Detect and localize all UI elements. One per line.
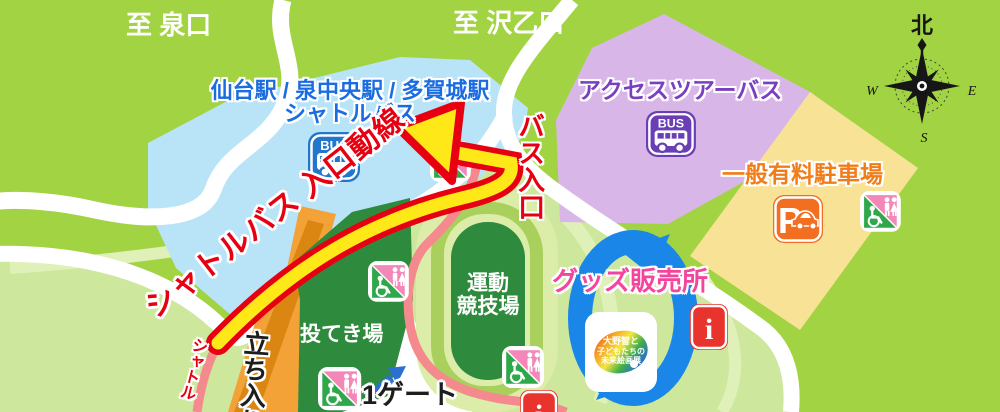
label-to-sawaoto-exit: 至 沢乙口	[453, 9, 564, 37]
event-logo: 大野智と 子どもたちの 未来絵画展	[585, 312, 657, 392]
label-stadium-line1: 運動	[448, 273, 528, 296]
compass-west-label: W	[866, 84, 879, 99]
label-stadium-line2: 競技場	[448, 296, 528, 319]
label-goods-shop: グッズ販売所	[552, 267, 708, 295]
label-general-paid-parking: 一般有料駐車場	[722, 162, 883, 187]
restroom-icon	[502, 346, 544, 388]
label-bus-entrance: バス入口	[514, 112, 543, 227]
map-canvas: BUS i	[0, 0, 1000, 412]
restroom-icon	[318, 367, 361, 410]
svg-text:子どもたちの: 子どもたちの	[597, 346, 645, 356]
label-throwing-field: 投てき場	[300, 324, 383, 347]
info-icon	[520, 390, 558, 412]
svg-text:大野智と: 大野智と	[603, 335, 639, 346]
label-access-tour-bus: アクセスツアーバス	[578, 78, 782, 103]
parking-icon: P	[773, 195, 823, 243]
restroom-icon	[368, 261, 409, 302]
restroom-icon	[860, 191, 901, 232]
svg-text:未来絵画展: 未来絵画展	[600, 355, 641, 365]
info-icon	[690, 304, 728, 350]
tour-bus-icon	[646, 111, 696, 157]
compass-east-label: E	[967, 84, 977, 99]
label-gate-1: 1ゲート	[362, 381, 458, 410]
label-to-izumi-exit: 至 泉口	[126, 11, 211, 39]
label-shuttle-bus: シャトルバス	[200, 102, 500, 126]
stadium-access-map: BUS i	[0, 0, 1000, 412]
compass-south-label: S	[921, 131, 928, 146]
label-shuttle-stations: 仙台駅 / 泉中央駅 / 多賀城駅	[200, 79, 500, 103]
compass-north-label: 北	[911, 13, 933, 38]
